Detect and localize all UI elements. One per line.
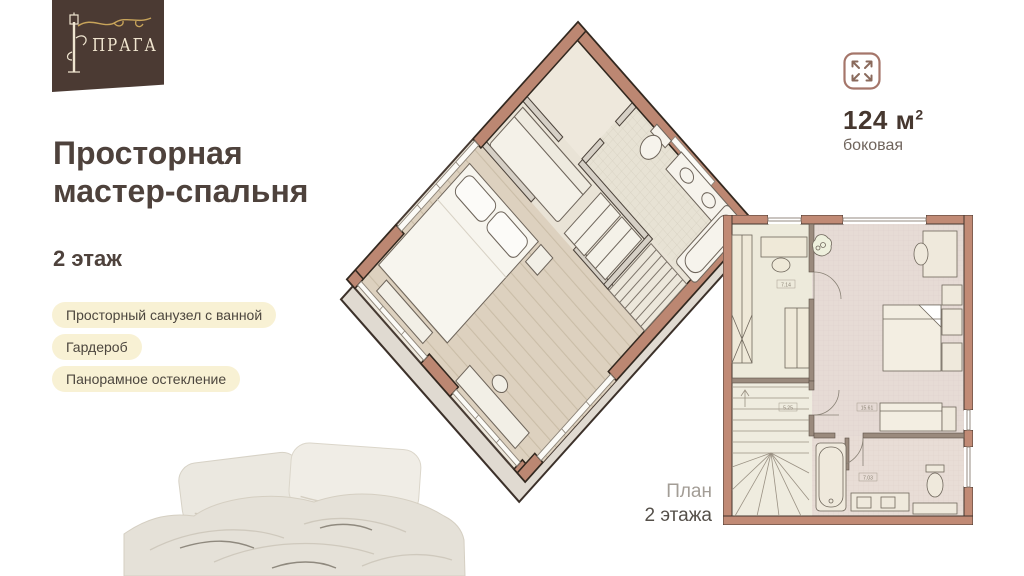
- area-value: 124 м2: [843, 105, 924, 136]
- plan-caption-line2: 2 этажа: [598, 504, 712, 528]
- room-label-bathroom: 7.03: [863, 475, 873, 481]
- plan-caption-line1: План: [598, 480, 712, 504]
- feature-badge-bathroom: Просторный санузел с ванной: [52, 302, 276, 328]
- room-label-closet: 7.14: [781, 282, 791, 288]
- area-number: 124 м: [843, 105, 915, 135]
- slide: ПРАГА Просторная мастер-спальня 2 этаж П…: [0, 0, 1024, 576]
- area-sup: 2: [915, 106, 923, 122]
- desk-2d: [761, 237, 807, 257]
- title-line-2: мастер-спальня: [53, 172, 308, 210]
- room-label-stairs: 5.25: [783, 405, 793, 411]
- plan-caption: План 2 этажа: [598, 480, 712, 528]
- feature-list: Просторный санузел с ванной Гардероб Пан…: [52, 302, 276, 392]
- feature-badge-wardrobe: Гардероб: [52, 334, 142, 360]
- bed-photo: [122, 428, 467, 576]
- brand-logo: ПРАГА: [52, 0, 164, 92]
- floorplan-2d: 7.14 5.25 15.61 7.03: [723, 215, 973, 525]
- feature-badge-glazing: Панорамное остекление: [52, 366, 240, 392]
- title-line-1: Просторная: [53, 134, 308, 172]
- duvet: [124, 494, 465, 576]
- toilet-2d: [926, 465, 944, 472]
- page-title: Просторная мастер-спальня: [53, 134, 308, 210]
- brand-name: ПРАГА: [92, 34, 158, 56]
- room-label-bedroom: 15.61: [861, 405, 874, 411]
- gold-flourish: [78, 18, 151, 27]
- area-info: 124 м2 боковая: [843, 52, 924, 155]
- chair-2d: [772, 258, 790, 272]
- chair-2d: [914, 243, 928, 265]
- stairwell-2d: [732, 381, 812, 516]
- single-bed-2d: [880, 403, 942, 431]
- area-subtitle: боковая: [843, 137, 924, 155]
- floor-label: 2 этаж: [53, 246, 122, 272]
- expand-arrows-icon: [843, 52, 881, 90]
